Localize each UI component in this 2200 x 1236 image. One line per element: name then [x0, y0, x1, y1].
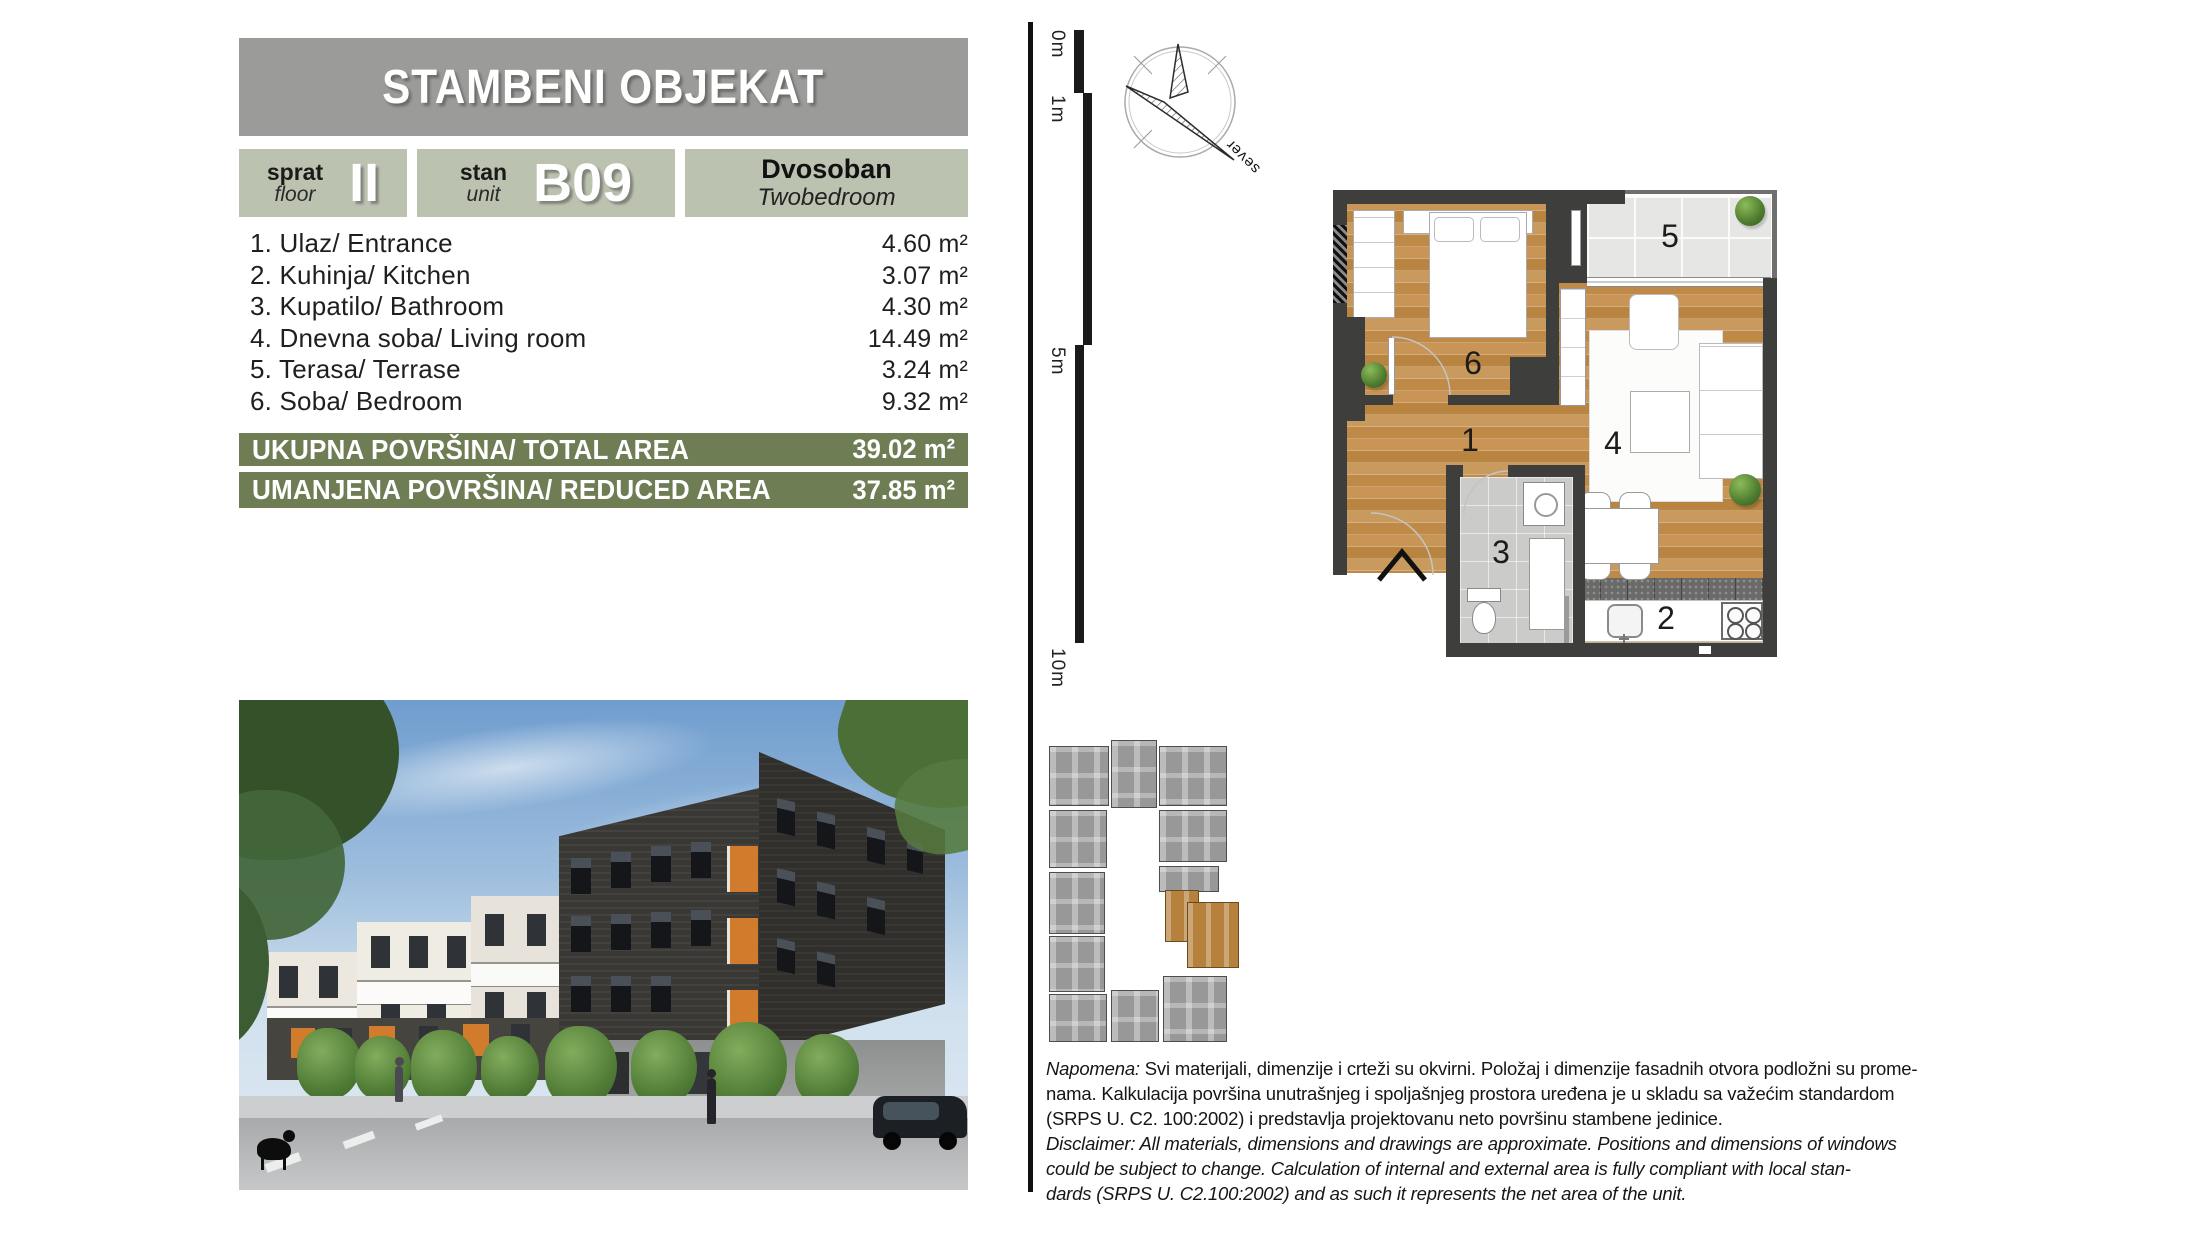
room-area: 3.24 m² [882, 356, 968, 385]
disclaimer-text-sr: Svi materijali, dimenzije i crteži su ok… [1140, 1058, 1918, 1079]
wall [1448, 395, 1559, 405]
closet [1560, 288, 1586, 406]
scale-label-5m: 5m [1046, 347, 1068, 375]
coffee-table [1630, 391, 1690, 453]
plan-outside-area [1333, 573, 1446, 663]
photo-tree [411, 1030, 477, 1106]
plan-room-number-1: 1 [1461, 424, 1479, 456]
photo-window [571, 976, 591, 1012]
kitchen-backsplash-tile [1573, 578, 1763, 600]
photo-window [409, 936, 428, 968]
room-row: 5. Terasa/ Terrase 3.24 m² [250, 354, 968, 386]
wall [1347, 395, 1393, 405]
photo-dog-leg [261, 1158, 264, 1170]
floor-labels: sprat floor [267, 160, 323, 206]
wall [1625, 190, 1777, 194]
key-plan-unit [1049, 810, 1107, 868]
total-area-value: 39.02 m² [852, 434, 955, 465]
wall [1446, 643, 1777, 657]
pillow [1480, 217, 1520, 242]
unit-info-box: stan unit B09 [417, 149, 675, 217]
page-header: STAMBENI OBJEKAT [239, 38, 968, 136]
sofa [1699, 343, 1763, 479]
kitchen-sink [1607, 604, 1643, 638]
photo-dog-leg [283, 1158, 286, 1170]
key-plan-highlighted-unit [1187, 902, 1239, 968]
photo-window [611, 976, 631, 1012]
washer-drum [1534, 493, 1558, 517]
room-row: 6. Soba/ Bedroom 9.32 m² [250, 386, 968, 418]
wall [1573, 465, 1585, 643]
plan-sliding-door [1587, 277, 1771, 287]
total-area-bar: UKUPNA POVRŠINA/ TOTAL AREA 39.02 m² [239, 433, 968, 466]
disclaimer-line-sr: nama. Kalkulacija površina unutrašnjeg i… [1046, 1081, 2006, 1106]
photo-window [447, 936, 466, 968]
room-area: 9.32 m² [882, 388, 968, 417]
room-row: 3. Kupatilo/ Bathroom 4.30 m² [250, 291, 968, 323]
plan-room-number-2: 2 [1657, 602, 1675, 634]
armchair [1629, 294, 1679, 350]
door-leaf [1571, 210, 1581, 266]
floor-info-box: sprat floor II [239, 149, 407, 217]
photo-dog-head [283, 1130, 295, 1142]
room-area: 4.30 m² [882, 293, 968, 322]
wall-window-hatch [1333, 225, 1347, 303]
photo-window [527, 914, 546, 946]
page-title: STAMBENI OBJEKAT [383, 60, 825, 115]
photo-window [777, 938, 795, 974]
key-plan-unit [1111, 740, 1157, 808]
type-label-en: Twobedroom [757, 185, 895, 211]
room-name: 2. Kuhinja/ Kitchen [250, 260, 471, 291]
stove [1721, 602, 1763, 640]
photo-sidewalk [239, 1096, 968, 1120]
reduced-area-value: 37.85 m² [852, 475, 955, 506]
door-leaf [1388, 337, 1395, 395]
burner [1745, 607, 1762, 624]
scale-bar-segment [1075, 345, 1084, 643]
room-name: 5. Terasa/ Terrase [250, 354, 461, 385]
photo-window [611, 852, 631, 888]
room-name: 6. Soba/ Bedroom [250, 386, 463, 417]
key-plan-unit [1049, 936, 1105, 992]
total-area-label: UKUPNA POVRŠINA/ TOTAL AREA [252, 434, 689, 466]
photo-balcony [357, 980, 475, 1005]
divider-line [1028, 22, 1033, 1192]
key-plan-unit [1159, 866, 1219, 892]
photo-window [651, 976, 671, 1012]
burner [1727, 607, 1744, 624]
plan-room-number-3: 3 [1492, 536, 1510, 568]
photo-window [571, 858, 591, 894]
key-plan-unit [1111, 990, 1159, 1042]
scale-label-10m: 10m [1046, 648, 1068, 688]
plant-icon [1729, 474, 1761, 506]
photo-window [777, 868, 795, 906]
photo-road [239, 1118, 968, 1190]
building-photo [239, 700, 968, 1190]
photo-window [817, 951, 835, 987]
photo-balcony-orange [727, 918, 758, 964]
brochure-page: STAMBENI OBJEKAT sprat floor II stan uni… [0, 0, 2200, 1236]
room-row: 2. Kuhinja/ Kitchen 3.07 m² [250, 260, 968, 292]
photo-window [485, 914, 504, 946]
floor-label-en: floor [267, 184, 323, 206]
photo-person [395, 1066, 403, 1102]
disclaimer-line-sr: (SRPS U. C2. 100:2002) i predstavlja pro… [1046, 1106, 2006, 1131]
photo-car-wheel [939, 1132, 957, 1150]
room-name: 3. Kupatilo/ Bathroom [250, 291, 504, 322]
photo-car [873, 1088, 967, 1152]
room-list: 1. Ulaz/ Entrance 4.60 m² 2. Kuhinja/ Ki… [250, 228, 968, 417]
plan-room-number-6: 6 [1464, 347, 1482, 379]
key-plan-unit [1049, 994, 1107, 1042]
scale-bar-segment [1074, 30, 1084, 93]
photo-dog [257, 1138, 291, 1160]
photo-tree [481, 1036, 539, 1102]
photo-window [691, 842, 711, 878]
wall [1772, 190, 1777, 278]
unit-label-sr: stan [460, 160, 507, 184]
unit-labels: stan unit [460, 160, 507, 206]
photo-window [817, 811, 835, 849]
scale-bar-segment [1083, 93, 1092, 345]
room-area: 4.60 m² [882, 230, 968, 259]
unit-label-en: unit [460, 184, 507, 206]
photo-window [571, 916, 591, 952]
photo-window [867, 827, 885, 865]
scale-label-0m: 0m [1046, 30, 1068, 58]
key-plan [1047, 740, 1239, 1045]
photo-window [319, 966, 338, 998]
faucet [1619, 638, 1629, 640]
photo-window [691, 910, 711, 946]
disclaimer-line-en: Disclaimer: All materials, dimensions an… [1046, 1131, 2006, 1156]
floor-value: II [349, 149, 379, 217]
wall [1446, 465, 1460, 643]
floor-label-sr: sprat [267, 160, 323, 184]
toilet-bowl [1472, 602, 1496, 634]
room-name: 1. Ulaz/ Entrance [250, 228, 453, 259]
plan-room-number-4: 4 [1604, 427, 1622, 459]
photo-person [707, 1078, 716, 1124]
photo-window [867, 897, 885, 935]
disclaimer-label-sr: Napomena: [1046, 1058, 1140, 1079]
washing-machine [1523, 482, 1565, 526]
plan-room-number-5: 5 [1661, 220, 1679, 252]
dining-table [1573, 508, 1659, 564]
disclaimer-line-en: dards (SRPS U. C2.100:2002) and as such … [1046, 1181, 2006, 1206]
reduced-area-bar: UMANJENA POVRŠINA/ REDUCED AREA 37.85 m² [239, 472, 968, 508]
photo-window [611, 914, 631, 950]
key-plan-unit [1159, 746, 1227, 806]
unit-value: B09 [533, 149, 632, 217]
photo-balcony-orange [727, 846, 758, 892]
room-row: 1. Ulaz/ Entrance 4.60 m² [250, 228, 968, 260]
photo-window [651, 846, 671, 882]
photo-window [817, 881, 835, 919]
room-area: 14.49 m² [868, 325, 968, 354]
photo-window [777, 798, 795, 836]
photo-car-wheel [883, 1132, 901, 1150]
key-plan-unit [1163, 976, 1227, 1042]
type-info-box: Dvosoban Twobedroom [685, 149, 968, 217]
burner [1727, 623, 1744, 640]
photo-window [651, 912, 671, 948]
reduced-area-label: UMANJENA POVRŠINA/ REDUCED AREA [252, 474, 771, 506]
pillow [1434, 217, 1474, 242]
plant-icon [1735, 196, 1765, 226]
plant-icon [1361, 362, 1387, 388]
disclaimer-line-sr: Napomena: Svi materijali, dimenzije i cr… [1046, 1056, 2006, 1081]
room-area: 3.07 m² [882, 262, 968, 291]
wall [1763, 278, 1777, 657]
room-row: 4. Dnevna soba/ Living room 14.49 m² [250, 323, 968, 355]
burner [1745, 623, 1762, 640]
room-name: 4. Dnevna soba/ Living room [250, 323, 586, 354]
bathroom-vanity [1529, 538, 1565, 630]
disclaimer-line-en: could be subject to change. Calculation … [1046, 1156, 2006, 1181]
wardrobe [1353, 210, 1395, 318]
type-label-sr: Dvosoban [761, 155, 892, 185]
floor-plan: 1 2 3 4 5 6 [1333, 190, 1777, 663]
photo-car-window [883, 1102, 939, 1120]
photo-balcony [471, 962, 563, 987]
key-plan-unit [1049, 872, 1105, 934]
wall-notch [1699, 646, 1711, 654]
photo-tree [297, 1028, 361, 1100]
towel-rail [1564, 596, 1569, 648]
photo-window [371, 936, 390, 968]
key-plan-unit [1049, 746, 1109, 806]
disclaimer-text: Napomena: Svi materijali, dimenzije i cr… [1046, 1056, 2006, 1206]
toilet-tank [1467, 588, 1501, 602]
key-plan-unit [1159, 810, 1227, 862]
wall [1546, 204, 1559, 359]
photo-window [279, 966, 298, 998]
scale-label-1m: 1m [1046, 95, 1068, 123]
